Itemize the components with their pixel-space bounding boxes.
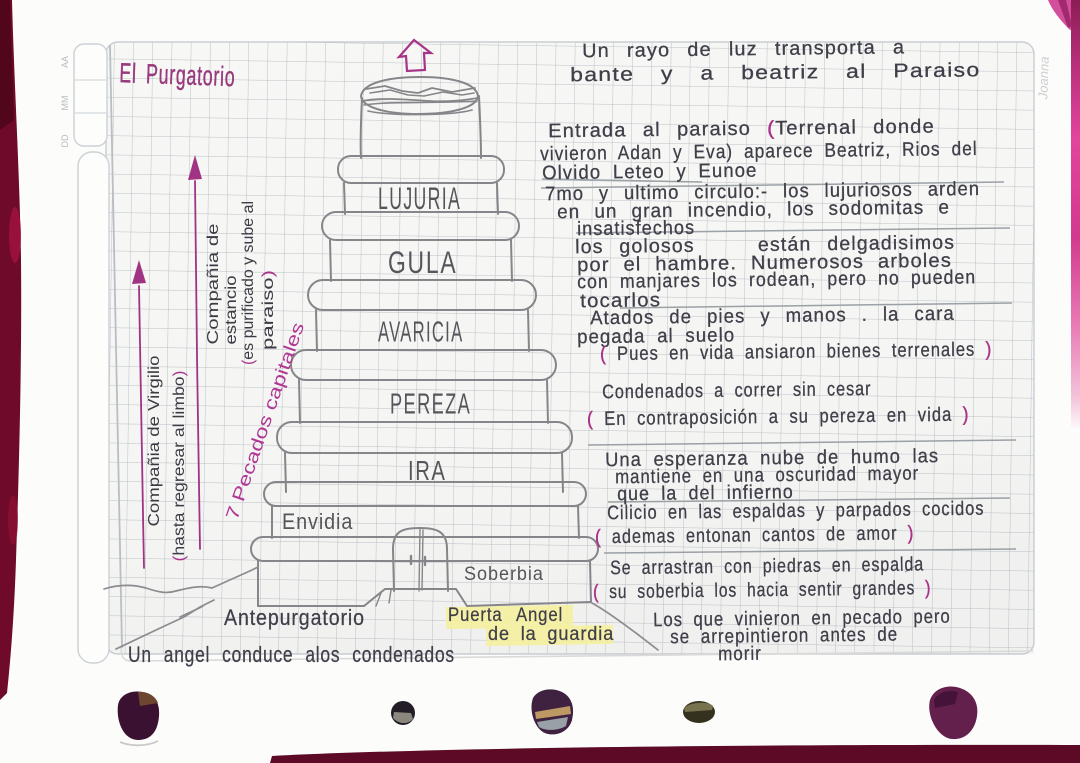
svg-text:AA: AA bbox=[60, 56, 70, 68]
svg-text:Compañia de: Compañia de bbox=[205, 223, 222, 344]
svg-text:DD: DD bbox=[60, 134, 70, 147]
svg-text:Compañia de Virgilio: Compañia de Virgilio bbox=[146, 355, 163, 526]
svg-text:Joanna: Joanna bbox=[1035, 56, 1052, 100]
svg-text:MM: MM bbox=[60, 96, 70, 111]
svg-text:paraiso): paraiso) bbox=[260, 270, 277, 350]
svg-text:(es purificado y sube al: (es purificado y sube al bbox=[240, 201, 257, 365]
svg-text:estancio: estancio bbox=[223, 275, 240, 344]
svg-text:(hasta regresar al limbo): (hasta regresar al limbo) bbox=[171, 371, 188, 562]
